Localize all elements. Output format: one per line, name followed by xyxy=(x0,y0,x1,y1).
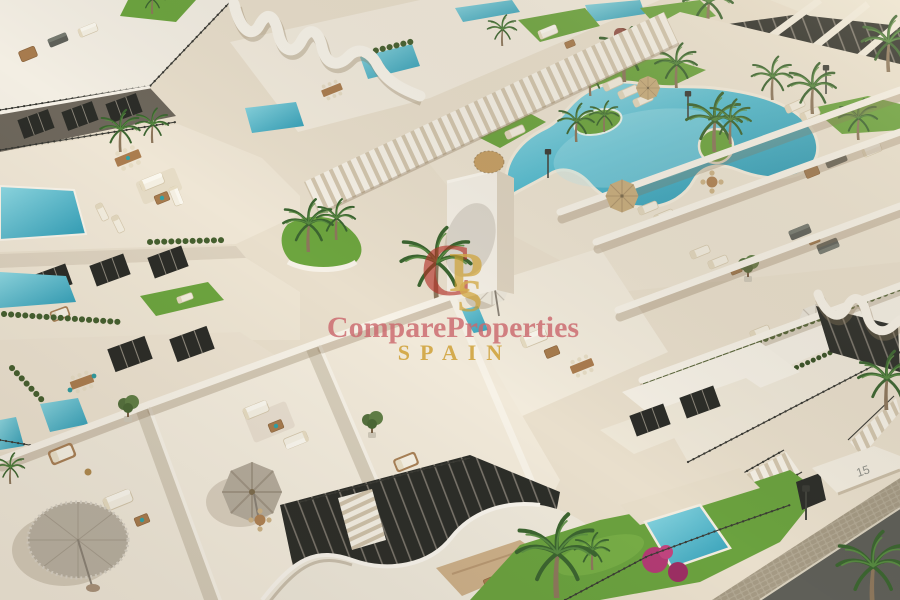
scene-aerial-complex: 15 xyxy=(0,0,900,600)
light-overlay xyxy=(0,0,900,600)
aerial-render-image: 15 C P S CompareProperties SPAIN xyxy=(0,0,900,600)
